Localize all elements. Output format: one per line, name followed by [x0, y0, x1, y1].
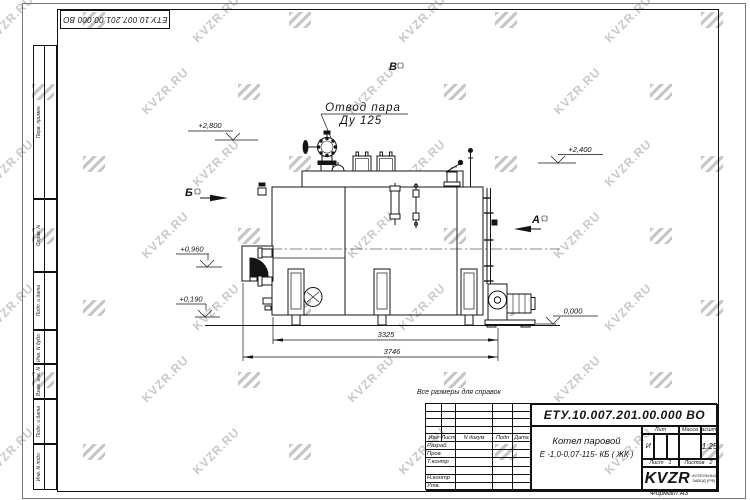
kvzr-logo-text: KVZR	[645, 470, 691, 488]
masshtab-header: Масштаб	[701, 426, 718, 434]
elevation-0960: +0,960	[176, 245, 222, 268]
row-prov: Пров.	[426, 450, 456, 458]
elevation-2400: +2,400	[538, 145, 603, 163]
title-block: Изм Лист N докум Подп Дата Разраб. Пров.…	[425, 403, 717, 490]
revision-table	[426, 404, 531, 434]
top-doc-number: ЕТУ.10.007.201.00.000 ВО	[63, 15, 167, 24]
row-razrab: Разраб.	[426, 442, 456, 450]
view-marker-b: Б	[185, 187, 228, 201]
row-nkontr: Н.контр	[426, 475, 456, 483]
dim-inner: 3325	[378, 330, 396, 339]
margin-box-inv-podl: Инв. N подл.	[33, 444, 57, 490]
lit-header: Лит	[642, 426, 679, 434]
level-gauges	[390, 183, 419, 228]
col-data: Дата	[513, 434, 531, 442]
margin-label: Инв. N подл.	[36, 452, 42, 481]
svg-text:А: А	[531, 214, 540, 226]
margin-box-podp-data-2: Подп. и дата	[33, 399, 57, 444]
steam-outlet-callout: Отвод пара Ду 125	[321, 102, 408, 138]
elevation-0000: 0,000	[536, 307, 598, 325]
col-podp: Подп	[493, 434, 513, 442]
margin-box-inv-dubl: Инв. N дубл.	[33, 330, 57, 364]
reference-note: Все размеры для справок	[417, 389, 501, 396]
margin-label: Перв. примен.	[36, 105, 42, 138]
massa-header: Масса	[679, 426, 701, 434]
drawing-title-line1: Котел паровой	[552, 436, 620, 447]
col-list: Лист	[442, 434, 456, 442]
margin-label: Справ. N	[36, 225, 42, 246]
svg-text:Б: Б	[185, 187, 193, 199]
pump-unit	[485, 284, 535, 327]
margin-label: Подп. и дата	[36, 406, 42, 437]
view-markers: Б А В	[185, 61, 547, 232]
support-legs	[288, 269, 477, 325]
company-logo-cell: KVZR КОТЕЛЬНЫЙ ЗАВОД (РФ)	[642, 467, 718, 491]
margin-box-vzam-inv: Взам. инв. N	[33, 364, 57, 399]
top-hatches	[353, 152, 395, 171]
signature-rows: Разраб. Пров. Т.контр Н.контр Утв.	[426, 442, 531, 491]
elevation-0190: +0,190	[176, 295, 220, 318]
sheet-cell: Лист 1	[642, 459, 679, 467]
doc-number: ЕТУ.10.007.201.00.000 ВО	[531, 404, 718, 426]
row-tkontr: Т.контр	[426, 458, 456, 466]
col-izm: Изм	[426, 434, 442, 442]
svg-text:+2,400: +2,400	[568, 145, 592, 154]
margin-box-sprav-n: Справ. N	[33, 199, 57, 272]
margin-box-podp-data-1: Подп. и дата	[33, 272, 57, 330]
callout-line2: Ду 125	[338, 115, 382, 127]
svg-text:В: В	[389, 61, 397, 73]
elevation-2800: +2,800	[188, 121, 258, 140]
drawing-title: Котел паровой Е -1,0-0,07-115- КБ ( ЖК )	[531, 426, 642, 491]
margin-box-perv-primen: Перв. примен.	[33, 45, 57, 199]
svg-text:+0,190: +0,190	[179, 295, 203, 304]
revision-header-row: Изм Лист N докум Подп Дата	[426, 434, 531, 442]
downcomer-pipe	[483, 188, 497, 284]
massa-value	[679, 434, 701, 459]
svg-text:0,000: 0,000	[564, 307, 584, 316]
drawing-title-line2: Е -1,0-0,07-115- КБ ( ЖК )	[540, 450, 634, 459]
dim-overall: 3746	[384, 347, 402, 356]
scale-value: 1:25	[701, 434, 718, 459]
view-marker-a: А	[514, 214, 547, 232]
top-doc-number-box: ЕТУ.10.007.201.00.000 ВО	[60, 10, 170, 29]
row-utv: Утв.	[426, 483, 456, 491]
sheets-cell: Листов 2	[679, 459, 718, 467]
steam-outlet-valve	[303, 131, 337, 171]
margin-label: Подп. и дата	[36, 285, 42, 316]
lit-value: И	[642, 434, 654, 459]
margin-label: Взам. инв. N	[36, 367, 42, 396]
svg-text:+2,800: +2,800	[198, 121, 222, 130]
drawing-sheet: KVZR.RUKVZR.RUKVZR.RUKVZR.RUKVZR.RUKVZR.…	[0, 0, 750, 500]
col-n-dokum: N докум	[456, 434, 493, 442]
format-label: Формат А3	[650, 490, 688, 497]
dimensions: 3325 3746	[243, 283, 498, 361]
margin-label: Инв. N дубл.	[36, 333, 42, 362]
callout-line1: Отвод пара	[325, 102, 401, 114]
view-marker-v: В	[389, 61, 403, 73]
svg-text:+0,960: +0,960	[180, 245, 204, 254]
manhole	[304, 288, 322, 307]
